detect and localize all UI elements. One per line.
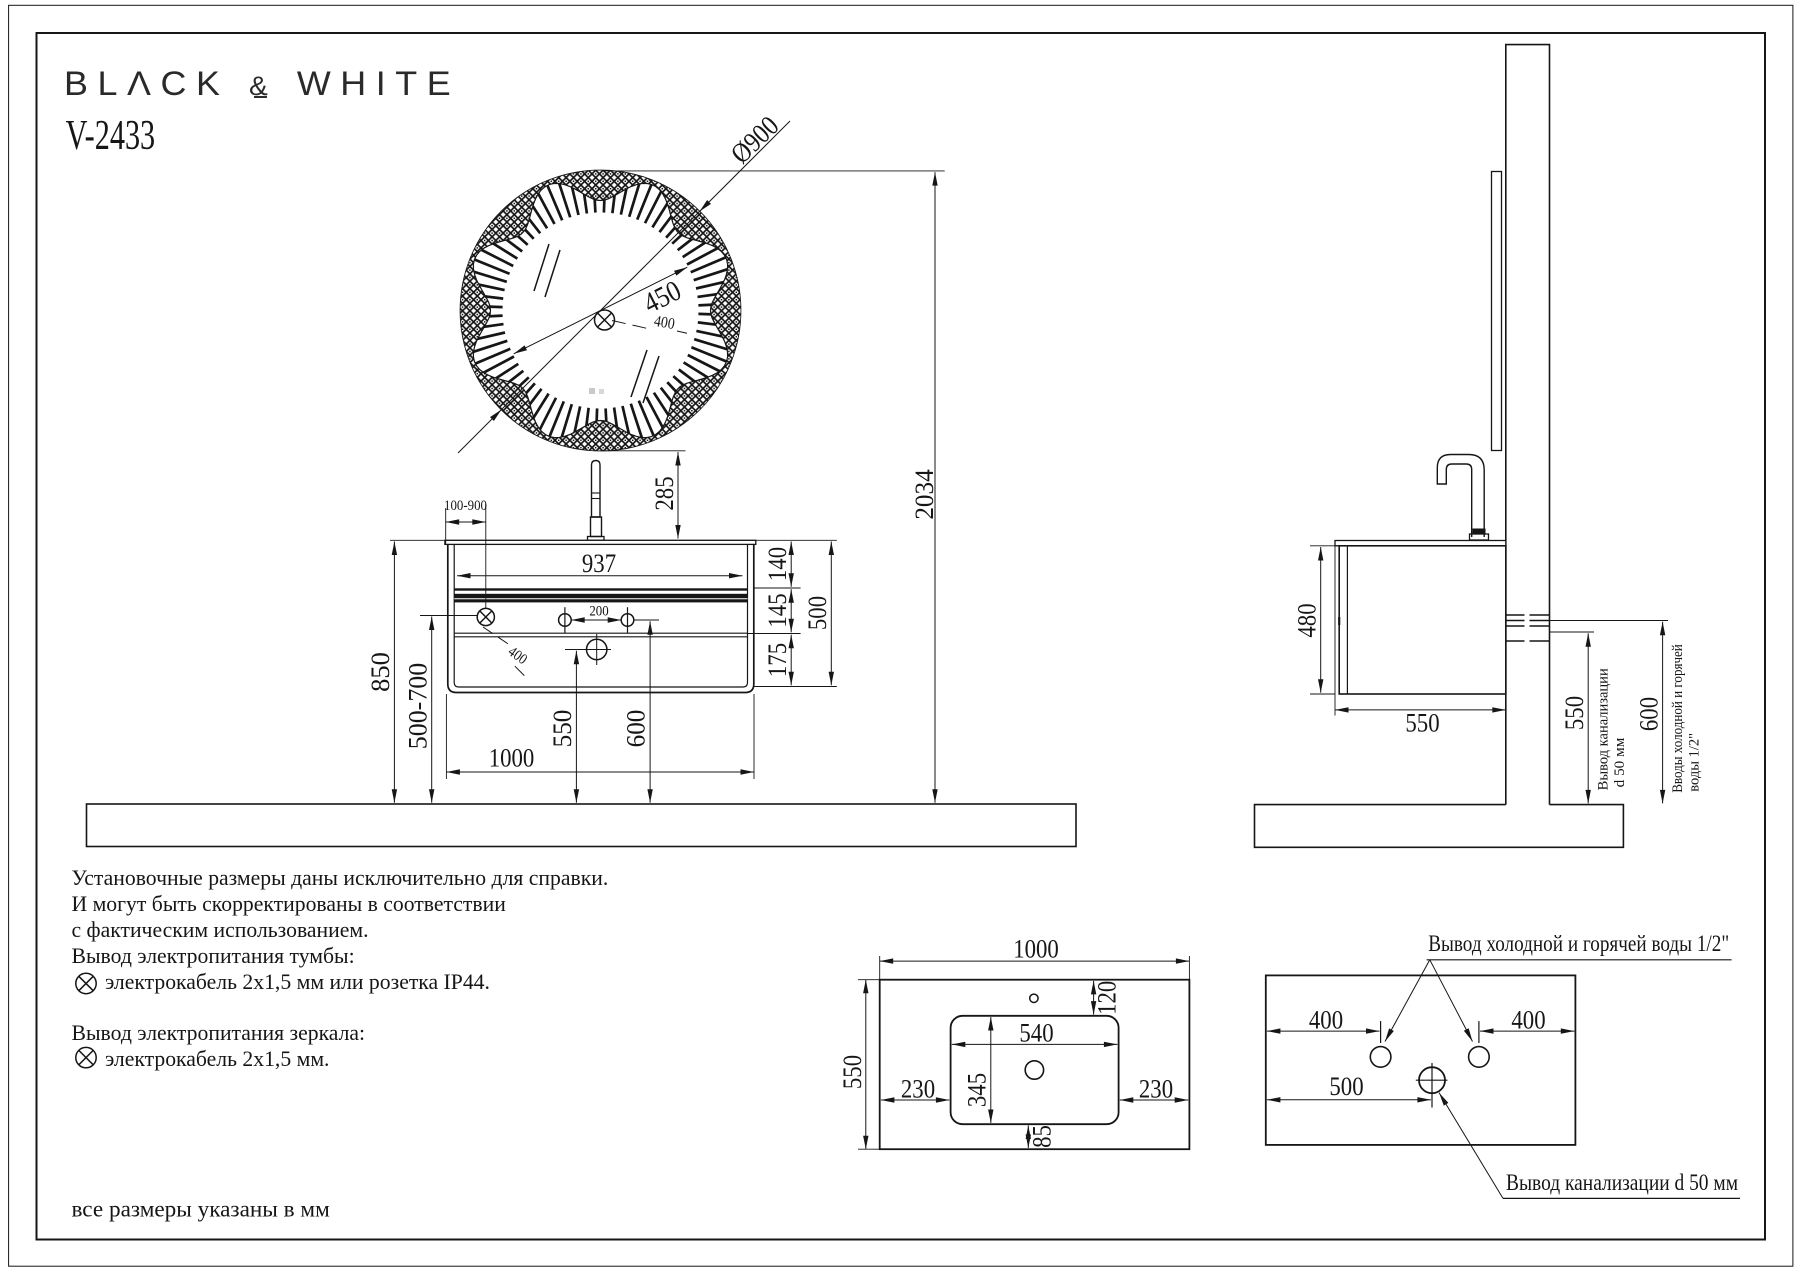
svg-text:600: 600 <box>621 710 651 748</box>
svg-text:Вывод холодной и горячей воды: Вывод холодной и горячей воды 1/2" <box>1428 931 1729 956</box>
svg-text:540: 540 <box>1019 1019 1053 1048</box>
svg-text:285: 285 <box>650 476 679 510</box>
svg-text:Вывод электропитания тумбы:: Вывод электропитания тумбы: <box>72 944 355 968</box>
svg-text:Установочные размеры даны искл: Установочные размеры даны исключительно … <box>72 866 609 890</box>
svg-text:Вывод электропитания зеркала:: Вывод электропитания зеркала: <box>72 1021 366 1045</box>
svg-text:2034: 2034 <box>909 469 939 519</box>
svg-text:230: 230 <box>901 1075 935 1104</box>
svg-text:850: 850 <box>365 652 395 692</box>
svg-text:воды 1/2": воды 1/2" <box>1687 733 1703 792</box>
svg-text:937: 937 <box>582 549 616 578</box>
svg-text:600: 600 <box>1635 697 1664 731</box>
svg-text:120: 120 <box>1093 981 1122 1015</box>
svg-text:100-900: 100-900 <box>444 498 487 514</box>
svg-text:с фактическим использованием.: с фактическим использованием. <box>72 918 369 942</box>
svg-text:140: 140 <box>763 547 792 581</box>
svg-text:V-2433: V-2433 <box>66 111 156 158</box>
svg-text:500: 500 <box>1329 1072 1363 1101</box>
svg-text:Вводы холодной и горячей: Вводы холодной и горячей <box>1669 644 1685 793</box>
svg-text:480: 480 <box>1293 603 1322 637</box>
svg-text:все размеры указаны в мм: все размеры указаны в мм <box>72 1197 331 1223</box>
svg-text:500-700: 500-700 <box>403 663 432 750</box>
svg-text:145: 145 <box>763 593 792 627</box>
svg-text:И могут быть скорректированы в: И могут быть скорректированы в соответст… <box>72 892 507 916</box>
svg-text:Вывод канализации d 50 мм: Вывод канализации d 50 мм <box>1506 1170 1738 1195</box>
svg-text:1000: 1000 <box>1013 935 1059 964</box>
svg-text:электрокабель 2х1,5 мм или роз: электрокабель 2х1,5 мм или розетка IP44. <box>105 970 490 994</box>
svg-text:200: 200 <box>589 604 608 620</box>
svg-text:500: 500 <box>803 596 832 630</box>
svg-text:345: 345 <box>963 1073 992 1107</box>
svg-text:электрокабель 2х1,5 мм.: электрокабель 2х1,5 мм. <box>105 1047 329 1071</box>
svg-text:550: 550 <box>1560 696 1589 730</box>
svg-text:85: 85 <box>1028 1125 1057 1148</box>
svg-text:400: 400 <box>1309 1006 1343 1035</box>
svg-text:d 50 мм: d 50 мм <box>1612 737 1628 787</box>
svg-text:Вывод канализации: Вывод канализации <box>1596 668 1612 790</box>
svg-text:550: 550 <box>838 1055 867 1089</box>
svg-text:550: 550 <box>1405 709 1439 738</box>
svg-text:230: 230 <box>1139 1075 1173 1104</box>
svg-text:550: 550 <box>547 710 577 748</box>
svg-text:400: 400 <box>653 313 676 333</box>
svg-text:175: 175 <box>763 643 792 677</box>
svg-text:400: 400 <box>1511 1006 1545 1035</box>
svg-text:1000: 1000 <box>489 744 535 773</box>
